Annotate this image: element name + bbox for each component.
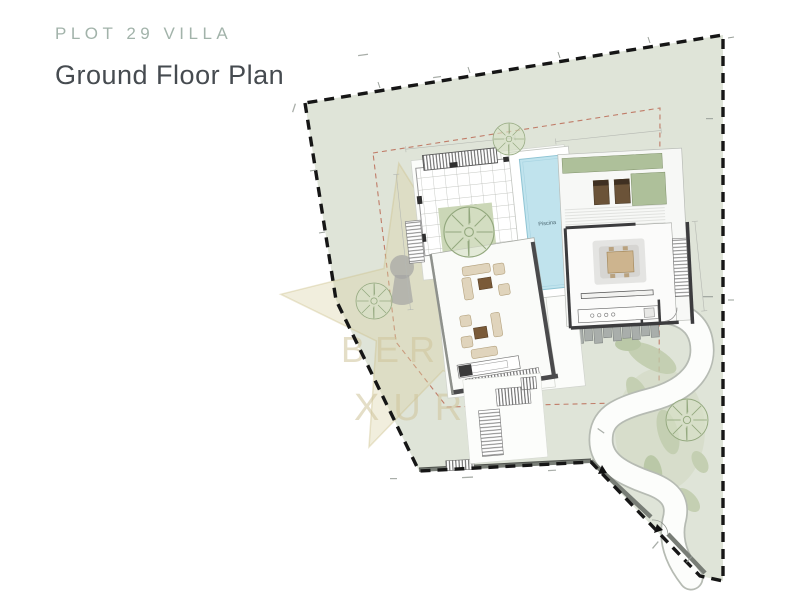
dining-area [592,238,646,285]
watermark-text-fragment: BER [341,329,445,370]
tree-icon [666,399,708,441]
right-wing [558,148,695,330]
floor-plan-page: PLOT 29 VILLA Ground Floor Plan [0,0,800,600]
tree-icon [444,207,494,257]
exterior-stairs [463,373,548,463]
tree-icon [493,123,525,155]
tree-icon [356,283,392,319]
site-plan-drawing: BER R XURY [0,0,800,600]
terrace-planter [631,172,667,206]
